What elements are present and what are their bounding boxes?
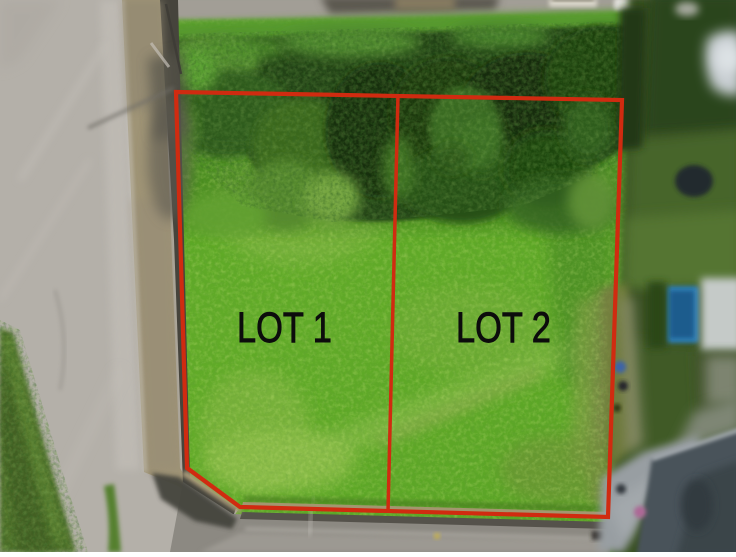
svg-text:LOT 2: LOT 2 [456,304,551,351]
svg-text:LOT 1: LOT 1 [237,304,332,351]
